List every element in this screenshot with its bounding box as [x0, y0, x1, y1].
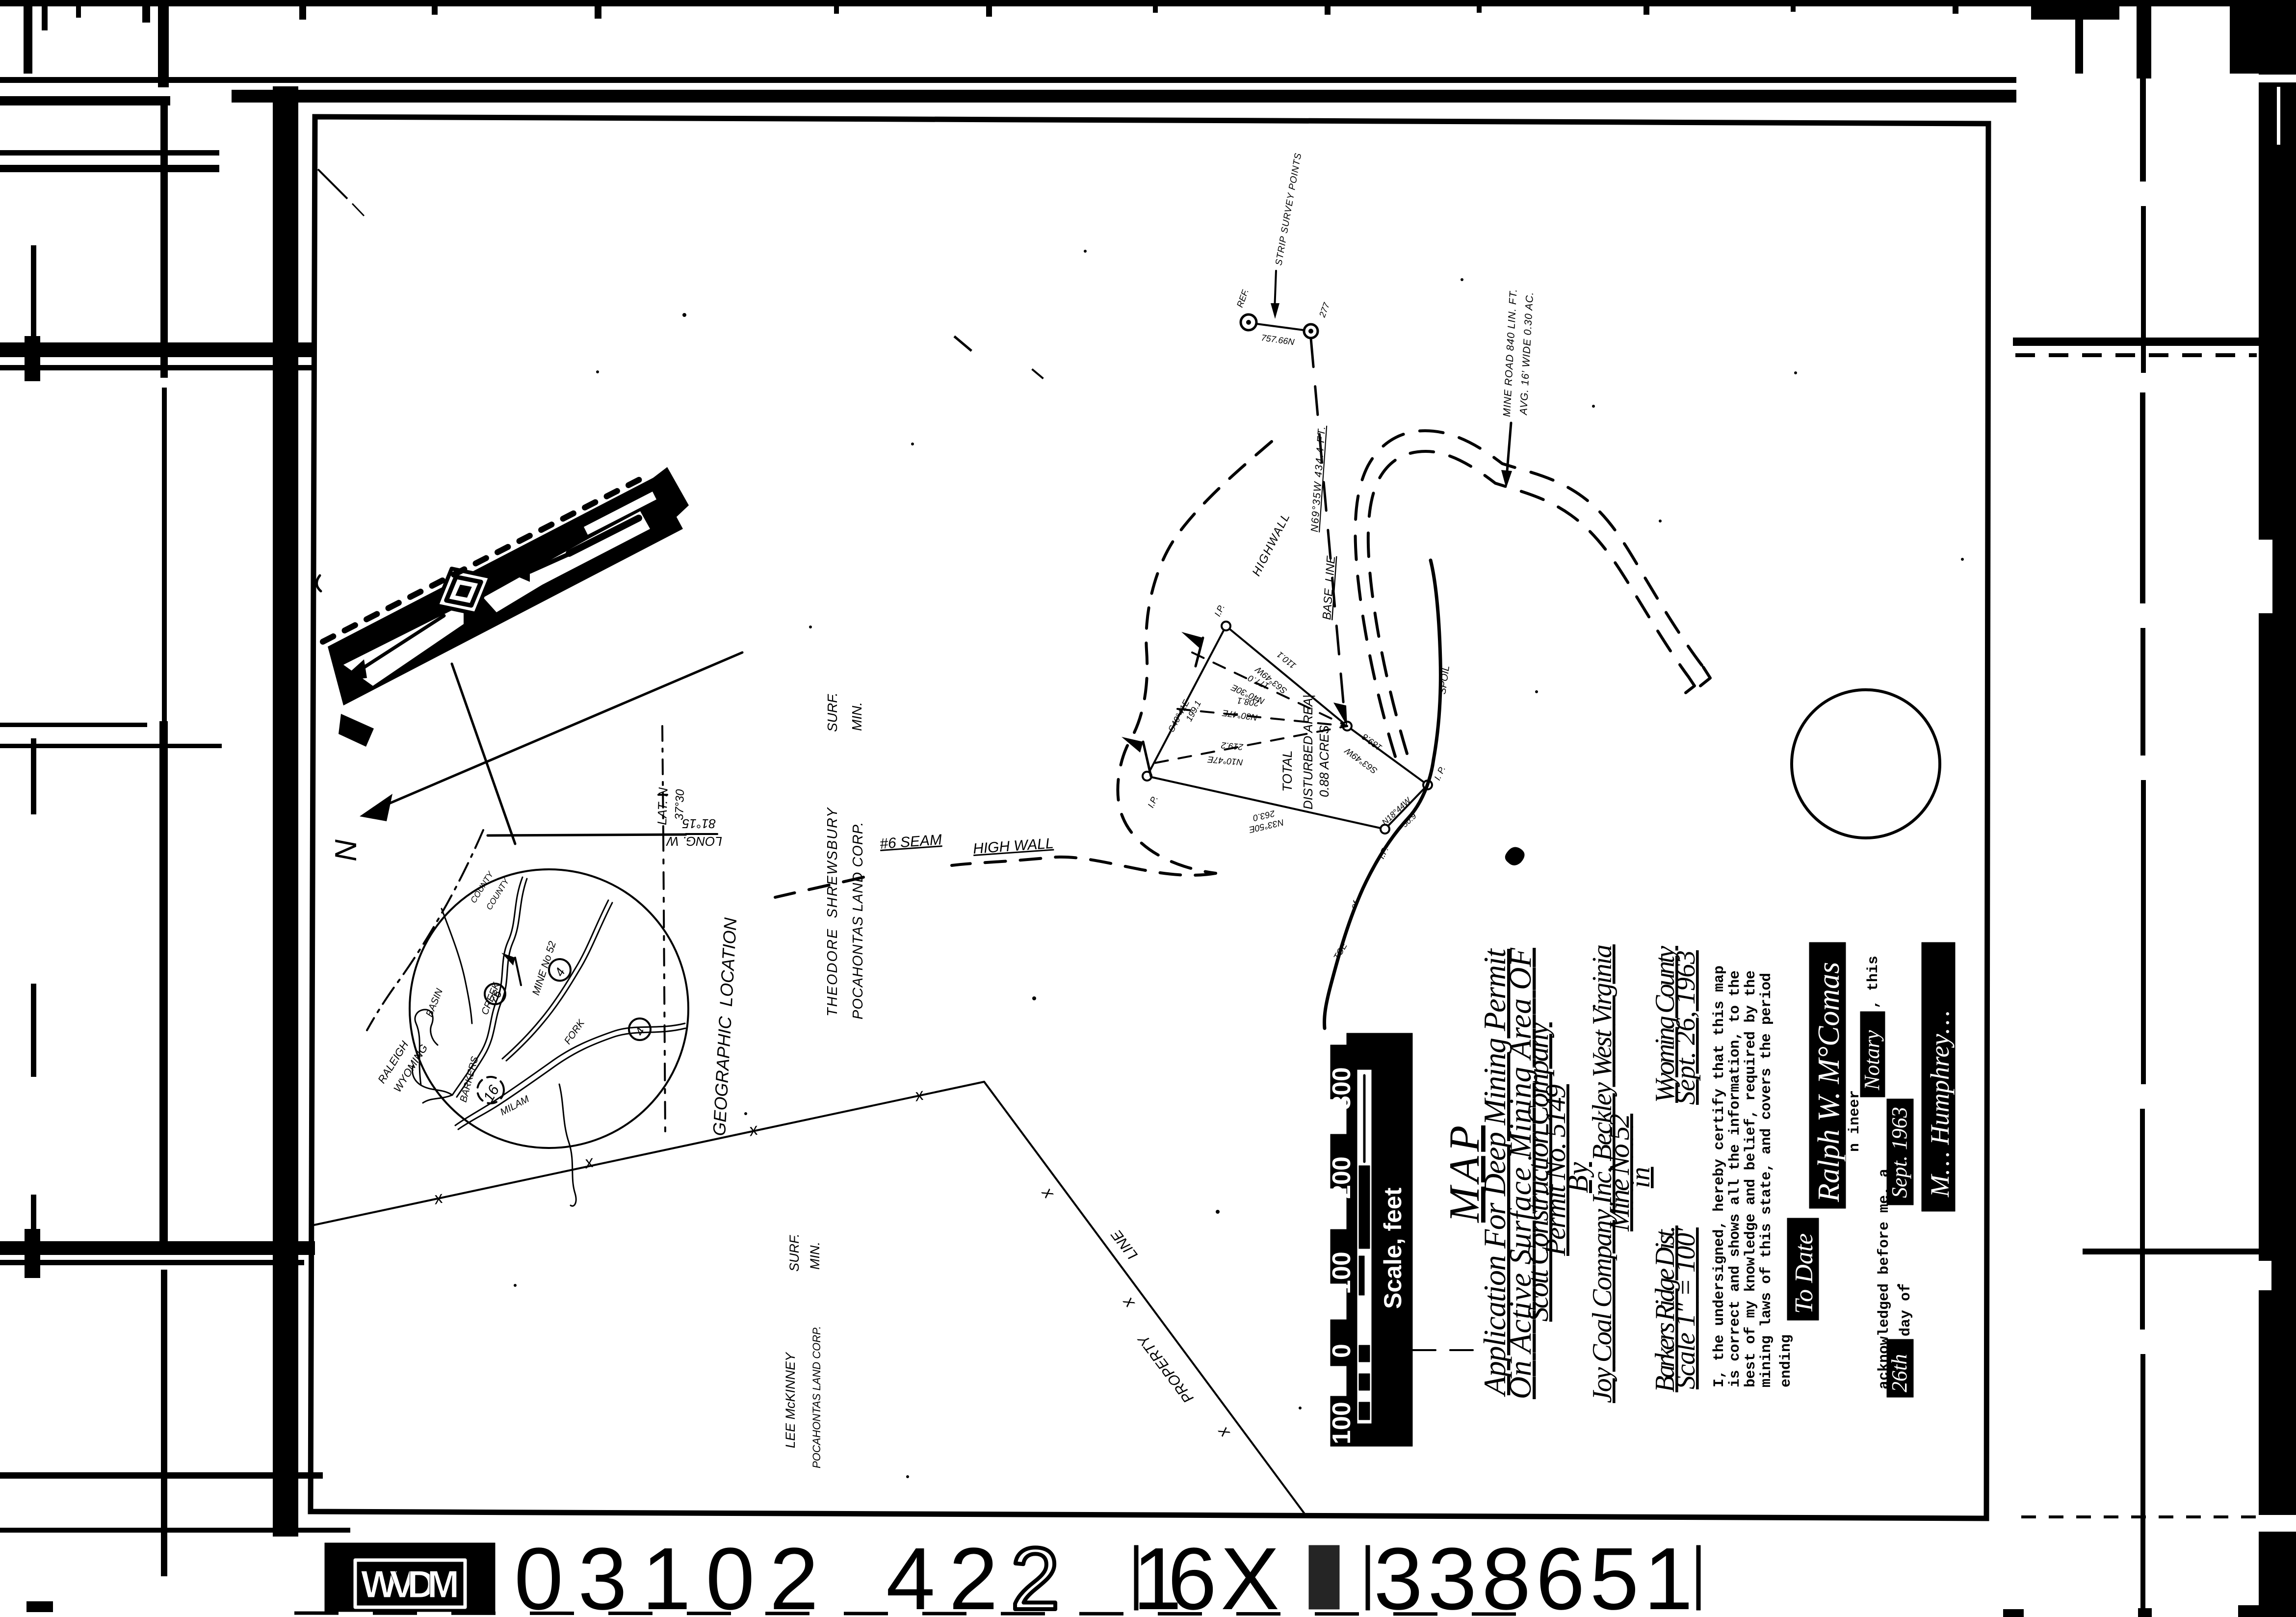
- svg-text:200: 200: [1328, 1156, 1356, 1199]
- svg-text:2: 2: [1011, 1530, 1060, 1617]
- svg-text:POCAHONTAS LAND CORP.: POCAHONTAS LAND CORP.: [850, 822, 866, 1019]
- svg-text:N: N: [329, 839, 363, 861]
- svg-text:is correct and shows all the i: is correct and shows all the information…: [1727, 970, 1744, 1387]
- svg-text:LEE McKINNEY: LEE McKINNEY: [783, 1352, 798, 1448]
- svg-text:MIN.: MIN.: [849, 702, 864, 731]
- svg-text:219.2: 219.2: [1221, 740, 1244, 752]
- svg-text:SURF.: SURF.: [787, 1233, 802, 1272]
- svg-text:Ralph W. M°Comas: Ralph W. M°Comas: [1812, 962, 1846, 1202]
- svg-text:mining laws of this state, and: mining laws of this state, and covers th…: [1758, 973, 1775, 1387]
- svg-text:THEODORE SHREWSBURY: THEODORE SHREWSBURY: [825, 807, 840, 1017]
- svg-text:TOTAL: TOTAL: [1280, 750, 1295, 792]
- svg-text:81°15: 81°15: [682, 816, 716, 831]
- svg-text:300: 300: [1328, 1067, 1356, 1110]
- svg-text:best of my knowledge and belie: best of my knowledge and belief, require…: [1743, 970, 1759, 1387]
- svg-text:100: 100: [1328, 1402, 1356, 1444]
- svg-text:338651: 338651: [1374, 1530, 1698, 1617]
- svg-text:100: 100: [1328, 1252, 1356, 1294]
- svg-text:Notary: Notary: [1860, 1030, 1884, 1091]
- svg-text:Scale 1″ = 100′: Scale 1″ = 100′: [1670, 1227, 1701, 1389]
- svg-text:day of: day of: [1898, 1283, 1914, 1336]
- svg-text:M… Humphrey…: M… Humphrey…: [1925, 1011, 1955, 1198]
- svg-text:42: 42: [886, 1530, 1012, 1617]
- svg-text:LONG. W: LONG. W: [666, 834, 722, 849]
- svg-text:WVDM: WVDM: [361, 1563, 459, 1606]
- svg-text:6: 6: [1168, 1530, 1217, 1617]
- svg-text:n ineer: n ineer: [1847, 1090, 1863, 1152]
- svg-text:SURF.: SURF.: [825, 693, 840, 732]
- svg-text:I, the undersigned, hereby cer: I, the undersigned, hereby certify that …: [1711, 965, 1728, 1387]
- svg-text:DISTURBED AREA|: DISTURBED AREA|: [1301, 695, 1315, 809]
- svg-text:Sept. 26, 1963: Sept. 26, 1963: [1670, 950, 1701, 1105]
- svg-text:MIN.: MIN.: [808, 1242, 822, 1270]
- svg-text:0: 0: [1328, 1344, 1356, 1358]
- svg-text:in: in: [1625, 1167, 1656, 1188]
- svg-text:37°30: 37°30: [673, 789, 687, 821]
- svg-text:03102: 03102: [514, 1530, 834, 1617]
- svg-text:Scale, feet: Scale, feet: [1379, 1187, 1407, 1309]
- svg-text:0.88 ACRES: 0.88 ACRES: [1317, 725, 1331, 797]
- svg-text:X: X: [1221, 1530, 1279, 1617]
- svg-text:To Date: To Date: [1790, 1233, 1818, 1314]
- svg-text:ending: ending: [1778, 1334, 1795, 1387]
- svg-text:26th: 26th: [1887, 1354, 1911, 1392]
- svg-text:POCAHONTAS LAND CORP.: POCAHONTAS LAND CORP.: [810, 1326, 823, 1468]
- svg-text:Sept. 1963: Sept. 1963: [1887, 1107, 1911, 1198]
- svg-text:, this: , this: [1865, 956, 1882, 1009]
